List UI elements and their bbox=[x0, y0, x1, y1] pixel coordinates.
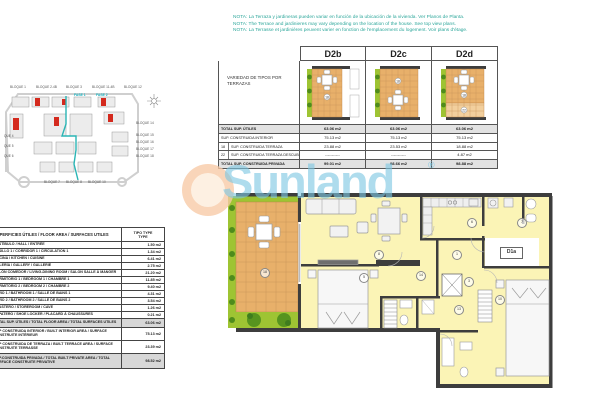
variants-thumbnail-row: VARIEDAD DE TIPOS POR TERRAZAS bbox=[218, 61, 500, 125]
variants-row-value: ----------- bbox=[366, 151, 432, 160]
room-number-circle: 6 bbox=[467, 218, 477, 228]
bed2-icon bbox=[506, 280, 549, 376]
site-fase-label: FASE 1 bbox=[74, 93, 86, 97]
area-row-value: 11.85 m2 bbox=[122, 277, 165, 284]
area-row-label: BAÑO 1 / BATHROOM 1 / SALLE DE BAINS 1 bbox=[0, 291, 122, 298]
note-es: NOTA: La Terraza y jardineras pueden var… bbox=[233, 15, 593, 22]
variant-column-d2c: D2c bbox=[366, 46, 432, 61]
variants-row-value: 75.13 m2 bbox=[300, 134, 366, 143]
toilet2-icon bbox=[460, 367, 468, 377]
dining-table-icon bbox=[378, 208, 400, 234]
washer-icon bbox=[488, 198, 498, 208]
room-number-circle: 3 bbox=[464, 277, 474, 287]
variants-row-label-cell: SUP. CONSTRUIDA INTERIOR bbox=[218, 134, 300, 143]
variants-row-label: SUP. CONSTRUIDA TERRAZA bbox=[231, 143, 283, 151]
variants-row-label-cell: 18SUP. CONSTRUIDA TERRAZA bbox=[218, 143, 300, 152]
site-block-label: BLOQUE 2-4B bbox=[36, 85, 57, 89]
elevator-shaft bbox=[442, 274, 462, 296]
svg-text:22: 22 bbox=[462, 108, 466, 112]
site-block-label: BLOQUE 16 bbox=[136, 140, 154, 144]
site-block-label: QUE 6 bbox=[4, 154, 14, 158]
site-block-label: BLOQUE 1 bbox=[10, 85, 26, 89]
variants-row-label: SUP. CONSTRUIDA INTERIOR bbox=[221, 134, 273, 142]
variants-row-label-cell: TOTAL SUP. CONSTRUIDA PRIVADA bbox=[218, 160, 300, 169]
variants-row-value: 63.06 m2 bbox=[300, 125, 366, 134]
variants-row-label-cell: TOTAL SUP. ÚTILES bbox=[218, 125, 300, 134]
area-row-value: 1.26 m2 bbox=[122, 305, 165, 312]
neighbor-fixture bbox=[526, 199, 536, 209]
terrace-thumbnail-d2b: 18 bbox=[300, 61, 366, 125]
area-table-row: SUP CONSTRUIDA DE TERRAZA / BUILT TERRAC… bbox=[0, 341, 165, 354]
area-table-row: TRASTERO / STOREROOM / CAVE1.26 m2 bbox=[0, 305, 165, 312]
area-row-label: SALÓN COMEDOR / LIVING-DINING ROOM / SAL… bbox=[0, 270, 122, 277]
area-row-value: 6.41 m2 bbox=[122, 256, 165, 263]
area-table-row: SALÓN COMEDOR / LIVING-DINING ROOM / SAL… bbox=[0, 270, 165, 277]
area-row-value: 21.20 m2 bbox=[122, 270, 165, 277]
armchair-icon bbox=[357, 222, 368, 233]
area-row-label: COCINA / KITCHEN / CUISINE bbox=[0, 256, 122, 263]
site-blocks bbox=[10, 97, 128, 172]
sink2-icon bbox=[460, 342, 472, 350]
sofa-icon bbox=[306, 199, 356, 214]
variants-row-label-cell: 22SUP. CONSTRUIDA TERRAZA DESCUBIERTA bbox=[218, 151, 300, 160]
site-block-label: BLOQUE 14 bbox=[136, 121, 154, 125]
variants-row-value: 75.13 m2 bbox=[432, 134, 498, 143]
variants-table-row: 22SUP. CONSTRUIDA TERRAZA DESCUBIERTA---… bbox=[218, 151, 500, 160]
svg-text:18: 18 bbox=[462, 93, 466, 97]
area-table-row: TOTAL SUP. ÚTILES / TOTAL FLOOR AREA / T… bbox=[0, 319, 165, 328]
variants-row-ref: 18 bbox=[221, 143, 229, 151]
bathtub-icon bbox=[442, 338, 454, 366]
variants-row-value: 63.06 m2 bbox=[366, 125, 432, 134]
variants-row-value: 99.01 m2 bbox=[300, 160, 366, 169]
room-number-circle: 5 bbox=[359, 273, 369, 283]
area-row-label: SUP CONSTRUIDA DE TERRAZA / BUILT TERRAC… bbox=[0, 341, 122, 354]
area-table-type-header: TIPO TYPE TYPE bbox=[122, 227, 165, 242]
variants-table-row: TOTAL SUP. CONSTRUIDA PRIVADA99.01 m298.… bbox=[218, 160, 500, 169]
variants-row-value: 98.88 m2 bbox=[432, 160, 498, 169]
area-table-row: BAÑO 1 / BATHROOM 1 / SALLE DE BAINS 14.… bbox=[0, 291, 165, 298]
area-table-row: ZAPATERO / SHOE LOCKER / PLACARD À CHAUS… bbox=[0, 312, 165, 319]
area-table-row: COCINA / KITCHEN / CUISINE6.41 m2 bbox=[0, 256, 165, 263]
tv-cabinet-icon bbox=[318, 260, 358, 265]
terrace-thumb-svg-d2d: 18 22 bbox=[436, 65, 494, 121]
variants-row-label: TOTAL SUP. CONSTRUIDA PRIVADA bbox=[221, 160, 285, 168]
variants-row-value: 63.06 m2 bbox=[432, 125, 498, 134]
terrace-thumbnail-d2d: 18 22 bbox=[432, 61, 498, 125]
room-number-circle: 10 bbox=[495, 295, 505, 305]
area-row-label: VESTÍBULO / HALL / ENTRÉE bbox=[0, 242, 122, 249]
variants-row-value: 23.88 m2 bbox=[300, 143, 366, 152]
variants-row-value: 4.87 m2 bbox=[432, 151, 498, 160]
area-row-label: DORMITORIO 1 / BEDROOM 1 / CHAMBRE 1 bbox=[0, 277, 122, 284]
area-table-row: BAÑO 2 / BATHROOM 2 / SALLE DE BAINS 23.… bbox=[0, 298, 165, 305]
terrace-thumbnail-d2c: 18 bbox=[366, 61, 432, 125]
area-table-row: DORMITORIO 1 / BEDROOM 1 / CHAMBRE 111.8… bbox=[0, 277, 165, 284]
variants-table-body: TOTAL SUP. ÚTILES63.06 m263.06 m263.06 m… bbox=[218, 125, 500, 169]
site-block-label: BLOQUE 7 bbox=[44, 180, 60, 184]
neighbor-toilet-icon bbox=[526, 214, 536, 222]
area-table-title: SUPERFICIES ÚTILES / FLOOR AREA / SURFAC… bbox=[0, 227, 122, 242]
sliding-door bbox=[299, 224, 301, 282]
variant-column-d2b: D2b bbox=[300, 46, 366, 61]
site-block-label: BLOQUE 11-4B bbox=[92, 85, 114, 89]
site-block-label: BLOQUE 8 bbox=[66, 180, 82, 184]
variants-table-row: TOTAL SUP. ÚTILES63.06 m263.06 m263.06 m… bbox=[218, 125, 500, 134]
area-table-row: SUP.CONSTRUIDA PRIVADA / TOTAL BUILT PRI… bbox=[0, 354, 165, 369]
compass-icon bbox=[147, 94, 161, 108]
boiler-icon bbox=[504, 198, 513, 207]
variants-header-row: D2b D2c D2d bbox=[300, 46, 500, 61]
sink-icon bbox=[469, 199, 478, 206]
site-block-label: BLOQUE 18 bbox=[136, 154, 154, 158]
coffee-table-icon bbox=[330, 226, 348, 237]
sink-cabinet-icon bbox=[400, 300, 412, 308]
surface-area-table: SUPERFICIES ÚTILES / FLOOR AREA / SURFAC… bbox=[0, 227, 165, 369]
area-row-value: 75.13 m2 bbox=[122, 328, 165, 341]
area-row-value: 63.06 m2 bbox=[122, 319, 165, 328]
site-block-label: BLOQUE 15 bbox=[136, 133, 154, 137]
area-row-label: GALERÍA / GALLERY / GALLERIE bbox=[0, 263, 122, 270]
floor-plan-svg bbox=[226, 192, 558, 392]
room-number-circle: 13 bbox=[454, 305, 464, 315]
site-plan: BLOQUE 1BLOQUE 2-4BBLOQUE 3BLOQUE 11-4BB… bbox=[4, 84, 166, 196]
terrace-variants-table: D2b D2c D2d VARIEDAD DE TIPOS POR TERRAZ… bbox=[218, 46, 500, 169]
area-table-row: DORMITORIO 2 / BEDROOM 2 / CHAMBRE 29.40… bbox=[0, 284, 165, 291]
terrace-notes: NOTA: La Terraza y jardineras pueden var… bbox=[233, 15, 593, 35]
area-row-value: 0.21 m2 bbox=[122, 312, 165, 319]
terrace-thumb-svg-d2c: 18 bbox=[370, 65, 428, 121]
area-row-value: 2.75 m2 bbox=[122, 263, 165, 270]
variants-row-value: ----------- bbox=[300, 151, 366, 160]
variants-row-ref: 22 bbox=[221, 151, 229, 159]
svg-text:18: 18 bbox=[396, 79, 400, 83]
area-row-value: 98.52 m2 bbox=[122, 354, 165, 369]
variants-row-value: 98.66 m2 bbox=[366, 160, 432, 169]
note-fr: NOTA: La Terrasse et jardinières peuvent… bbox=[233, 28, 593, 35]
plan-sheet: NOTA: La Terraza y jardineras pueden var… bbox=[0, 0, 600, 400]
area-row-label: TOTAL SUP. ÚTILES / TOTAL FLOOR AREA / T… bbox=[0, 319, 122, 328]
area-table-row: SUP CONSTRUIDA INTERIOR / BUILT INTERIOR… bbox=[0, 328, 165, 341]
area-row-value: 3.54 m2 bbox=[122, 298, 165, 305]
site-block-label: BLOQUE 10 bbox=[88, 180, 106, 184]
area-row-value: 1.34 m2 bbox=[122, 249, 165, 256]
room-number-circle: 1 bbox=[452, 250, 462, 260]
area-row-label: SUP.CONSTRUIDA PRIVADA / TOTAL BUILT PRI… bbox=[0, 354, 122, 369]
site-fase-label: FASE 2 bbox=[96, 93, 108, 97]
site-block-label: QUE 5 bbox=[4, 144, 14, 148]
terrace-thumb-svg-d2b: 18 bbox=[304, 65, 362, 121]
site-block-label: QUE 4 bbox=[4, 134, 14, 138]
room-number-circle: 18 bbox=[260, 268, 270, 278]
variants-table-row: 18SUP. CONSTRUIDA TERRAZA23.88 m223.53 m… bbox=[218, 143, 500, 152]
area-table-header: SUPERFICIES ÚTILES / FLOOR AREA / SURFAC… bbox=[0, 227, 165, 242]
site-block-label: BLOQUE 12 bbox=[124, 85, 142, 89]
variants-table-row: SUP. CONSTRUIDA INTERIOR75.13 m275.13 m2… bbox=[218, 134, 500, 143]
terrace bbox=[228, 196, 298, 328]
area-row-label: ZAPATERO / SHOE LOCKER / PLACARD À CHAUS… bbox=[0, 312, 122, 319]
variants-corner-label: VARIEDAD DE TIPOS POR TERRAZAS bbox=[218, 61, 300, 125]
area-table-row: PASILLO 1 / CORRIDOR 1 / CIRCULATION 11.… bbox=[0, 249, 165, 256]
variants-row-value: 75.13 m2 bbox=[366, 134, 432, 143]
unit-label-d1a: D1a bbox=[500, 247, 523, 259]
svg-text:18: 18 bbox=[325, 95, 329, 99]
area-table-body: VESTÍBULO / HALL / ENTRÉE1.50 m2PASILLO … bbox=[0, 242, 165, 369]
site-block-label: BLOQUE 17 bbox=[136, 147, 154, 151]
area-row-label: BAÑO 2 / BATHROOM 2 / SALLE DE BAINS 2 bbox=[0, 298, 122, 305]
area-row-value: 4.31 m2 bbox=[122, 291, 165, 298]
area-row-label: PASILLO 1 / CORRIDOR 1 / CIRCULATION 1 bbox=[0, 249, 122, 256]
room-number-circle: 7 bbox=[517, 218, 527, 228]
site-block-label: BLOQUE 3 bbox=[66, 85, 82, 89]
area-row-label: SUP CONSTRUIDA INTERIOR / BUILT INTERIOR… bbox=[0, 328, 122, 341]
room-number-circle: 14 bbox=[416, 271, 426, 281]
area-row-label: TRASTERO / STOREROOM / CAVE bbox=[0, 305, 122, 312]
variants-row-label: TOTAL SUP. ÚTILES bbox=[221, 125, 256, 133]
variants-row-label: SUP. CONSTRUIDA TERRAZA DESCUBIERTA bbox=[231, 151, 300, 159]
area-row-value: 1.50 m2 bbox=[122, 242, 165, 249]
type-header-line2: TYPE bbox=[122, 235, 164, 240]
variant-column-d2d: D2d bbox=[432, 46, 498, 61]
area-row-label: DORMITORIO 2 / BEDROOM 2 / CHAMBRE 2 bbox=[0, 284, 122, 291]
variants-row-value: 23.53 m2 bbox=[366, 143, 432, 152]
area-row-value: 23.39 m2 bbox=[122, 341, 165, 354]
variants-row-value: 18.88 m2 bbox=[432, 143, 498, 152]
room-number-circle: 8 bbox=[374, 250, 384, 260]
toilet-icon bbox=[400, 315, 408, 325]
area-table-row: VESTÍBULO / HALL / ENTRÉE1.50 m2 bbox=[0, 242, 165, 249]
area-table-row: GALERÍA / GALLERY / GALLERIE2.75 m2 bbox=[0, 263, 165, 270]
area-row-value: 9.40 m2 bbox=[122, 284, 165, 291]
